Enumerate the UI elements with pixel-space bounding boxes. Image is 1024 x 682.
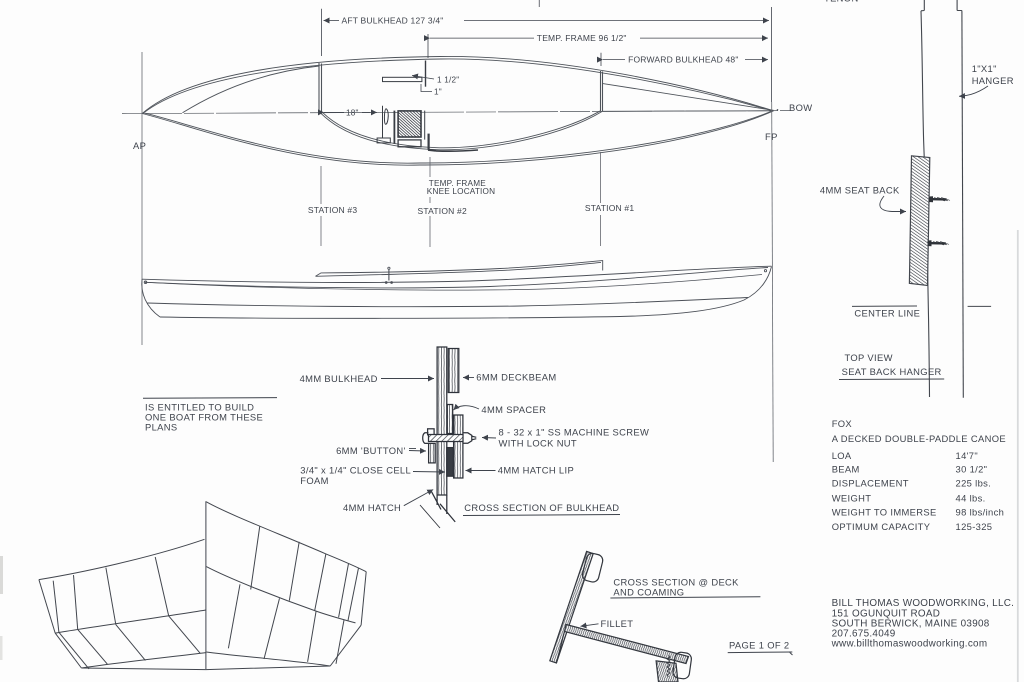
svg-text:4MM HATCH LIP: 4MM HATCH LIP <box>498 465 574 476</box>
svg-text:30 1/2": 30 1/2" <box>956 464 988 475</box>
svg-text:PAGE 1 OF 2: PAGE 1 OF 2 <box>729 640 789 651</box>
svg-text:WITH LOCK NUT: WITH LOCK NUT <box>499 438 578 449</box>
svg-text:225 lbs.: 225 lbs. <box>956 478 992 489</box>
svg-text:FOX: FOX <box>832 418 853 429</box>
svg-text:OPTIMUM CAPACITY: OPTIMUM CAPACITY <box>832 521 931 532</box>
svg-text:44 lbs.: 44 lbs. <box>956 493 986 504</box>
svg-text:WEIGHT TO IMMERSE: WEIGHT TO IMMERSE <box>832 507 937 518</box>
svg-text:FP: FP <box>765 131 778 142</box>
svg-text:4MM SEAT BACK: 4MM SEAT BACK <box>820 185 900 196</box>
svg-text:DISPLACEMENT: DISPLACEMENT <box>832 478 909 489</box>
svg-text:1": 1" <box>434 88 442 97</box>
svg-text:1 1/2": 1 1/2" <box>437 76 459 85</box>
svg-text:3/4" x 1/4" CLOSE CELL: 3/4" x 1/4" CLOSE CELL <box>300 465 411 476</box>
svg-text:LOA: LOA <box>832 450 852 461</box>
svg-text:PLANS: PLANS <box>145 422 178 433</box>
svg-text:CENTER LINE: CENTER LINE <box>854 308 920 319</box>
svg-text:HANGER: HANGER <box>972 75 1014 86</box>
svg-text:TOP VIEW: TOP VIEW <box>845 352 893 363</box>
svg-text:FILLET: FILLET <box>601 618 634 629</box>
svg-text:TEMP. FRAME 96 1/2": TEMP. FRAME 96 1/2" <box>537 33 627 43</box>
svg-text:CROSS SECTION OF BULKHEAD: CROSS SECTION OF BULKHEAD <box>464 502 619 513</box>
svg-text:BOW: BOW <box>789 102 812 113</box>
svg-text:www.billthomaswoodworking.com: www.billthomaswoodworking.com <box>831 639 988 650</box>
svg-text:TENON: TENON <box>824 0 859 4</box>
svg-text:1"X1": 1"X1" <box>972 63 997 74</box>
svg-text:BEAM: BEAM <box>832 464 860 475</box>
svg-text:AND COAMING: AND COAMING <box>613 587 684 598</box>
svg-text:STATION #2: STATION #2 <box>418 206 467 216</box>
svg-text:125-325: 125-325 <box>956 521 993 532</box>
svg-text:WEIGHT: WEIGHT <box>832 493 872 504</box>
svg-text:6MM 'BUTTON': 6MM 'BUTTON' <box>336 445 406 456</box>
svg-text:A DECKED DOUBLE-PADDLE CANOE: A DECKED DOUBLE-PADDLE CANOE <box>832 433 1006 444</box>
svg-text:AP: AP <box>133 140 146 151</box>
svg-text:SEAT BACK HANGER: SEAT BACK HANGER <box>842 366 942 377</box>
svg-text:8 - 32 x 1" SS MACHINE SCREW: 8 - 32 x 1" SS MACHINE SCREW <box>499 426 650 437</box>
svg-text:KNEE LOCATION: KNEE LOCATION <box>427 187 495 196</box>
svg-text:4MM HATCH: 4MM HATCH <box>343 502 401 513</box>
svg-text:FORWARD BULKHEAD 48": FORWARD BULKHEAD 48" <box>628 55 738 65</box>
svg-text:18": 18" <box>346 108 359 117</box>
svg-text:BILL THOMAS WOODWORKING, LLC.: BILL THOMAS WOODWORKING, LLC. <box>832 598 1015 609</box>
svg-text:98 lbs/inch: 98 lbs/inch <box>956 507 1005 518</box>
svg-text:STATION #3: STATION #3 <box>308 205 357 215</box>
svg-text:FOAM: FOAM <box>300 475 328 486</box>
svg-text:STATION #1: STATION #1 <box>585 203 634 213</box>
svg-text:6MM DECKBEAM: 6MM DECKBEAM <box>476 372 556 383</box>
svg-text:4MM BULKHEAD: 4MM BULKHEAD <box>300 373 378 384</box>
svg-text:4MM SPACER: 4MM SPACER <box>481 404 546 415</box>
svg-text:AFT BULKHEAD 127 3/4": AFT BULKHEAD 127 3/4" <box>342 16 444 26</box>
svg-text:14'7": 14'7" <box>956 450 979 461</box>
